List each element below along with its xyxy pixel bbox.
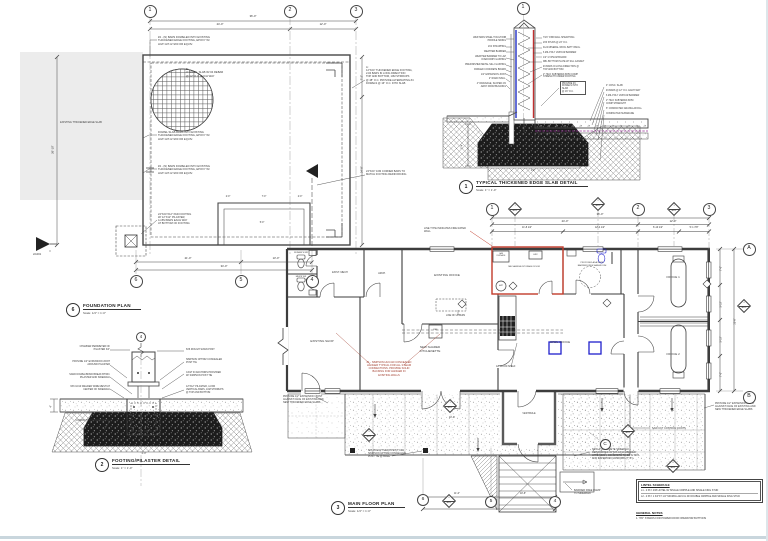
rigid-insulation bbox=[509, 112, 514, 144]
fire-rated-wall bbox=[492, 247, 563, 294]
exterior-drainage bbox=[447, 116, 509, 122]
new-sidewalk bbox=[563, 394, 705, 470]
detail-number-bubble: 6 bbox=[66, 303, 80, 317]
power-door-button bbox=[589, 342, 601, 354]
ada-washroom-fixtures bbox=[567, 249, 612, 288]
granular-fill bbox=[535, 133, 648, 139]
drawing-title: FOUNDATION PLAN bbox=[83, 303, 141, 310]
sheet-edge-right bbox=[766, 0, 768, 541]
section-cut-marker bbox=[306, 164, 318, 178]
refrigerator bbox=[429, 325, 442, 338]
lintel-schedule-title: LINTEL SCHEDULE bbox=[641, 483, 758, 487]
foundation-plan-title: 6 FOUNDATION PLANScale: 1/4" = 1'-0" bbox=[66, 303, 141, 317]
lintel-schedule-rows: L1 - 2 PLY 2X8 LINTEL W/ SINGLE CRIPPLE … bbox=[641, 488, 758, 499]
drawing-title: FOOTING/PILASTER DETAIL bbox=[112, 458, 190, 465]
wall-assembly bbox=[514, 28, 535, 120]
detail-number-bubble: 2 bbox=[95, 458, 109, 472]
drawing-scale: Scale: 1/4" = 1'-0" bbox=[83, 311, 141, 315]
deck-post bbox=[423, 448, 428, 453]
office-desk bbox=[671, 325, 686, 373]
washroom-fixtures bbox=[297, 251, 316, 296]
existing-slab-region bbox=[20, 52, 143, 200]
hrv-unit bbox=[529, 251, 542, 259]
slab-detail-title: 1 TYPICAL THICKENED EDGE SLAB DETAILScal… bbox=[459, 180, 588, 194]
thickened-edge-footing bbox=[478, 124, 588, 166]
slab-reinforcing-callout-circle bbox=[151, 69, 213, 131]
section-cut-marker bbox=[36, 237, 50, 251]
slope-hatch bbox=[471, 456, 497, 510]
footing-detail-title: 2 FOOTING/PILASTER DETAILScale: 1" = 1'-… bbox=[95, 458, 190, 472]
gas-furnace bbox=[493, 251, 509, 262]
sheet-edge-bottom bbox=[0, 536, 768, 539]
concrete-slab bbox=[535, 119, 648, 128]
hot-water-tank bbox=[496, 281, 506, 291]
sidewalk-slab bbox=[160, 399, 243, 412]
drawing-scale: Scale: 1/4" = 1'-0" bbox=[348, 509, 405, 513]
legend-row: 1. "PD" STANDS FOR POWER DOOR OPERATOR B… bbox=[636, 516, 763, 521]
beam-over-dashed bbox=[402, 330, 563, 333]
main-floor-plan-title: 3 MAIN FLOOR PLANScale: 1/4" = 1'-0" bbox=[331, 501, 405, 515]
power-door-button bbox=[549, 342, 561, 354]
general-notes-items: 1. "PD" STANDS FOR POWER DOOR OPERATOR B… bbox=[636, 516, 763, 521]
floor-plan-linework bbox=[278, 210, 743, 512]
deck-post bbox=[350, 448, 355, 453]
drawing-scale: Scale: 1" = 1'-0" bbox=[476, 188, 588, 192]
detail-number-bubble: 3 bbox=[331, 501, 345, 515]
post-tie-plate bbox=[128, 382, 159, 386]
pilaster bbox=[127, 399, 160, 435]
drawing-title: MAIN FLOOR PLAN bbox=[348, 501, 405, 508]
drawing-sheet: #4 - (N) BARS DOWELED INTO EXISTING THIC… bbox=[0, 0, 768, 541]
slab-edge-detail-linework bbox=[443, 15, 648, 180]
foundation-plan-linework bbox=[20, 16, 365, 274]
wood-post bbox=[132, 352, 155, 382]
office-desk bbox=[671, 259, 686, 307]
lintel-schedule: LINTEL SCHEDULE L1 - 2 PLY 2X8 LINTEL W/… bbox=[636, 479, 763, 503]
sidewalk-slab bbox=[60, 399, 127, 412]
drawing-title: TYPICAL THICKENED EDGE SLAB DETAIL bbox=[476, 180, 588, 187]
general-notes: GENERAL NOTES 1. "PD" STANDS FOR POWER D… bbox=[636, 511, 763, 521]
detail-number-bubble: 1 bbox=[459, 180, 473, 194]
drawing-scale: Scale: 1" = 1'-0" bbox=[112, 466, 190, 470]
legend-row: L2 - 2 PLY 1 3/4"X7 1/4" MICROLLAM LVL W… bbox=[641, 493, 758, 499]
general-notes-title: GENERAL NOTES bbox=[636, 511, 763, 515]
